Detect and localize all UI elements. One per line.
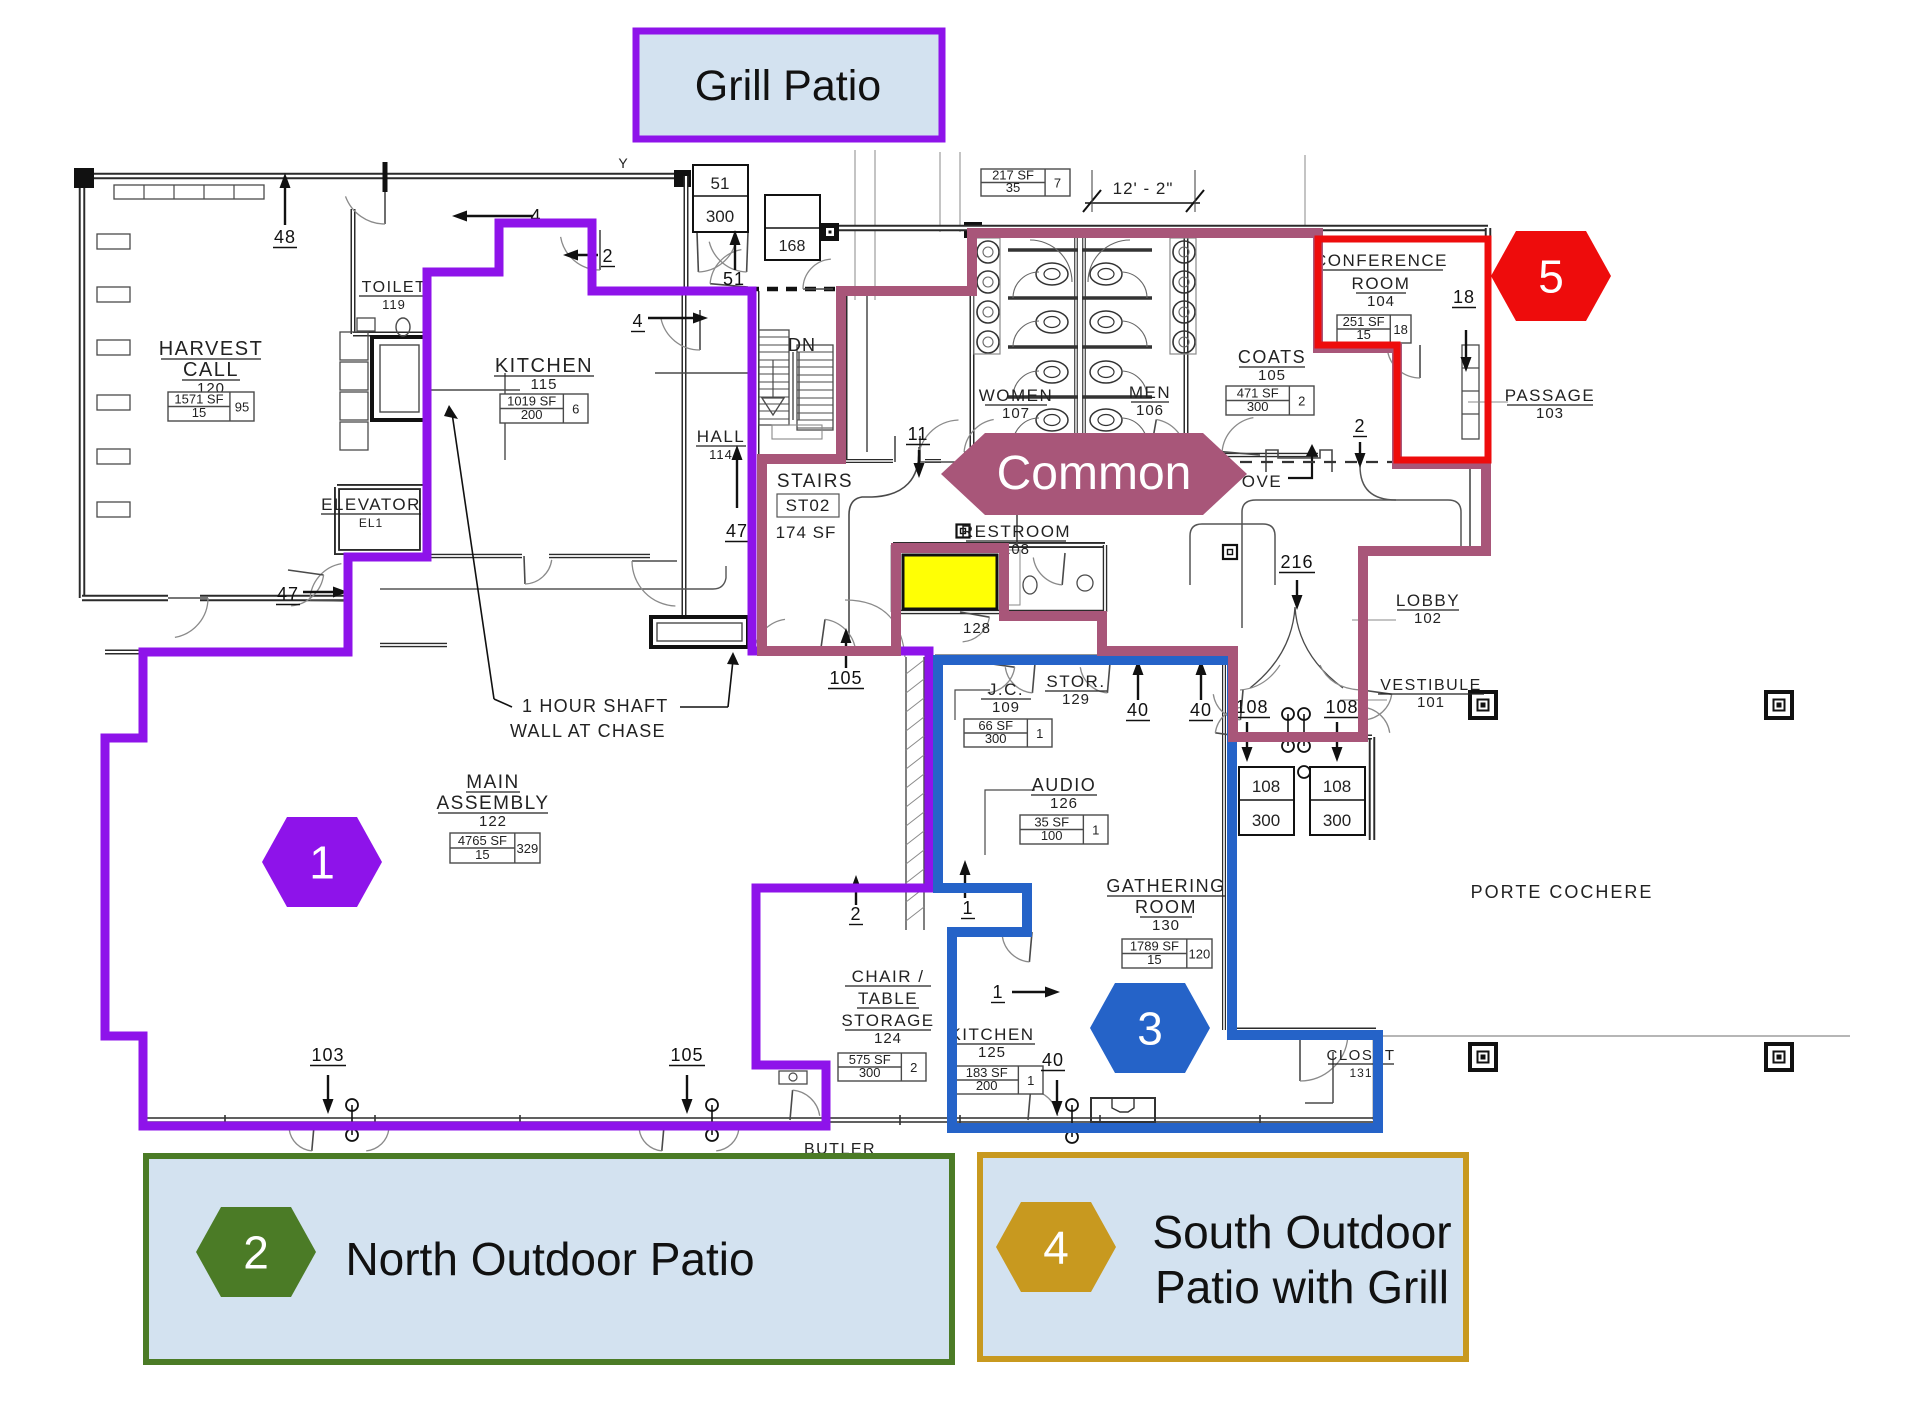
svg-text:51: 51 (711, 174, 730, 193)
svg-text:131: 131 (1349, 1066, 1372, 1080)
svg-text:1: 1 (309, 837, 335, 889)
svg-text:GATHERING: GATHERING (1106, 876, 1225, 896)
svg-text:1 HOUR SHAFT: 1 HOUR SHAFT (522, 696, 668, 716)
svg-text:1: 1 (1092, 823, 1099, 838)
svg-text:105: 105 (829, 668, 862, 688)
svg-text:130: 130 (1152, 917, 1180, 934)
svg-text:4765 SF: 4765 SF (458, 833, 507, 848)
svg-text:Grill Patio: Grill Patio (695, 62, 881, 110)
svg-text:1: 1 (962, 898, 973, 918)
svg-text:105: 105 (670, 1045, 703, 1065)
svg-text:4: 4 (632, 311, 643, 331)
svg-text:LOBBY: LOBBY (1396, 591, 1460, 610)
svg-text:1: 1 (1036, 726, 1043, 741)
svg-text:DN: DN (788, 335, 816, 355)
svg-text:329: 329 (517, 841, 539, 856)
svg-text:Patio with Grill: Patio with Grill (1155, 1261, 1449, 1313)
svg-text:2: 2 (910, 1060, 917, 1075)
svg-text:2: 2 (602, 246, 613, 266)
svg-text:101: 101 (1417, 694, 1445, 711)
svg-text:KITCHEN: KITCHEN (495, 355, 593, 377)
svg-text:105: 105 (1258, 367, 1286, 384)
svg-text:OVE: OVE (1242, 472, 1282, 491)
svg-text:RESTROOM: RESTROOM (961, 522, 1071, 541)
svg-text:STAIRS: STAIRS (777, 471, 853, 492)
svg-text:1: 1 (992, 982, 1003, 1002)
svg-text:40: 40 (1042, 1050, 1064, 1070)
svg-text:103: 103 (311, 1045, 344, 1065)
svg-text:11: 11 (908, 424, 929, 444)
svg-text:AUDIO: AUDIO (1032, 775, 1097, 795)
svg-text:Common: Common (997, 447, 1192, 500)
svg-text:51: 51 (723, 269, 745, 289)
svg-text:6: 6 (572, 402, 579, 417)
svg-text:J.C.: J.C. (988, 680, 1024, 699)
svg-text:ROOM: ROOM (1135, 897, 1197, 917)
svg-text:103: 103 (1536, 405, 1564, 422)
svg-text:18: 18 (1453, 287, 1475, 307)
svg-text:47: 47 (277, 584, 299, 604)
svg-text:106: 106 (1136, 402, 1164, 419)
svg-text:1: 1 (1027, 1073, 1034, 1088)
svg-text:MAIN: MAIN (466, 772, 520, 793)
svg-text:40: 40 (1190, 700, 1212, 720)
svg-text:168: 168 (779, 238, 806, 255)
svg-text:CLOSET: CLOSET (1326, 1047, 1395, 1064)
svg-text:3: 3 (1137, 1003, 1163, 1055)
svg-text:300: 300 (1247, 399, 1269, 414)
svg-text:115: 115 (531, 376, 558, 393)
svg-text:200: 200 (976, 1078, 998, 1093)
svg-text:15: 15 (475, 847, 489, 862)
svg-text:COATS: COATS (1238, 347, 1306, 367)
svg-text:CHAIR /: CHAIR / (852, 967, 925, 986)
svg-text:95: 95 (235, 400, 249, 415)
svg-text:300: 300 (859, 1065, 881, 1080)
svg-text:5: 5 (1538, 251, 1564, 303)
svg-text:WALL AT CHASE: WALL AT CHASE (510, 721, 666, 741)
svg-text:Y: Y (618, 155, 628, 171)
svg-text:128: 128 (963, 620, 991, 637)
svg-text:4: 4 (1043, 1222, 1069, 1274)
svg-text:300: 300 (1252, 811, 1280, 830)
svg-text:PORTE COCHERE: PORTE COCHERE (1471, 882, 1654, 902)
svg-text:125: 125 (978, 1044, 1006, 1061)
svg-text:EL1: EL1 (359, 516, 383, 530)
svg-text:ROOM: ROOM (1352, 274, 1411, 293)
svg-text:18: 18 (1393, 322, 1407, 337)
svg-text:2: 2 (243, 1227, 269, 1279)
svg-text:122: 122 (479, 813, 507, 830)
svg-text:PASSAGE: PASSAGE (1505, 386, 1596, 405)
svg-text:119: 119 (382, 297, 406, 312)
svg-text:15: 15 (1356, 327, 1370, 342)
svg-text:ASSEMBLY: ASSEMBLY (436, 793, 549, 814)
svg-text:TABLE: TABLE (858, 989, 918, 1008)
svg-text:STOR.: STOR. (1046, 672, 1105, 691)
svg-text:120: 120 (1189, 947, 1211, 962)
svg-text:VESTIBULE: VESTIBULE (1380, 677, 1482, 694)
svg-text:108: 108 (1252, 777, 1280, 796)
svg-text:35: 35 (1006, 180, 1020, 195)
svg-text:48: 48 (274, 227, 296, 247)
svg-text:107: 107 (1002, 405, 1030, 422)
svg-text:108: 108 (1323, 777, 1351, 796)
svg-text:12' - 2": 12' - 2" (1113, 179, 1174, 198)
svg-text:102: 102 (1414, 610, 1442, 627)
svg-text:129: 129 (1062, 691, 1090, 708)
svg-text:47: 47 (726, 521, 748, 541)
svg-text:104: 104 (1367, 293, 1395, 310)
svg-text:100: 100 (1041, 828, 1063, 843)
svg-text:2: 2 (1354, 416, 1365, 436)
svg-text:200: 200 (521, 407, 543, 422)
svg-text:126: 126 (1050, 795, 1078, 812)
svg-text:124: 124 (874, 1030, 902, 1047)
svg-text:2: 2 (850, 904, 861, 924)
svg-text:15: 15 (192, 405, 206, 420)
svg-text:North Outdoor Patio: North Outdoor Patio (345, 1233, 754, 1285)
svg-text:CALL: CALL (183, 359, 239, 381)
svg-text:ST02: ST02 (786, 496, 831, 515)
svg-text:2: 2 (1298, 394, 1305, 409)
svg-text:HALL: HALL (697, 427, 746, 446)
svg-text:300: 300 (1323, 811, 1351, 830)
svg-text:300: 300 (985, 731, 1007, 746)
svg-text:CONFERENCE: CONFERENCE (1314, 251, 1448, 270)
svg-text:HARVEST: HARVEST (159, 338, 264, 360)
svg-text:109: 109 (992, 699, 1020, 716)
svg-text:300: 300 (706, 207, 734, 226)
svg-text:40: 40 (1127, 700, 1149, 720)
svg-text:South Outdoor: South Outdoor (1152, 1206, 1451, 1258)
svg-text:108: 108 (1325, 697, 1358, 717)
svg-text:108: 108 (1235, 697, 1268, 717)
svg-text:MEN: MEN (1129, 383, 1171, 402)
svg-text:WOMEN: WOMEN (979, 386, 1054, 405)
svg-text:114: 114 (709, 447, 733, 462)
svg-text:ELEVATOR: ELEVATOR (321, 495, 421, 514)
svg-text:15: 15 (1147, 952, 1161, 967)
svg-text:TOILET: TOILET (362, 279, 427, 296)
svg-text:216: 216 (1280, 552, 1313, 572)
svg-text:174 SF: 174 SF (776, 523, 837, 542)
svg-text:KITCHEN: KITCHEN (949, 1025, 1034, 1044)
svg-text:7: 7 (1054, 176, 1061, 191)
svg-text:STORAGE: STORAGE (841, 1011, 934, 1030)
